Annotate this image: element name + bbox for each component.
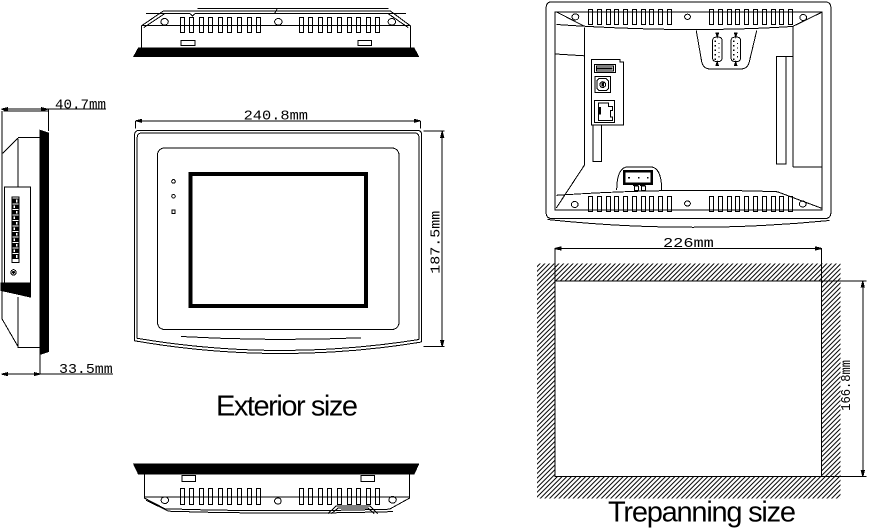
svg-text:40.7mm: 40.7mm (55, 97, 106, 113)
svg-text:Exterior size: Exterior size (216, 390, 358, 422)
svg-text:187.5mm: 187.5mm (429, 211, 445, 274)
svg-text:226mm: 226mm (663, 236, 714, 252)
svg-text:Trepanning size: Trepanning size (608, 497, 796, 528)
svg-text:166.8mm: 166.8mm (839, 360, 855, 411)
svg-text:240.8mm: 240.8mm (244, 108, 308, 124)
svg-text:33.5mm: 33.5mm (59, 362, 113, 378)
